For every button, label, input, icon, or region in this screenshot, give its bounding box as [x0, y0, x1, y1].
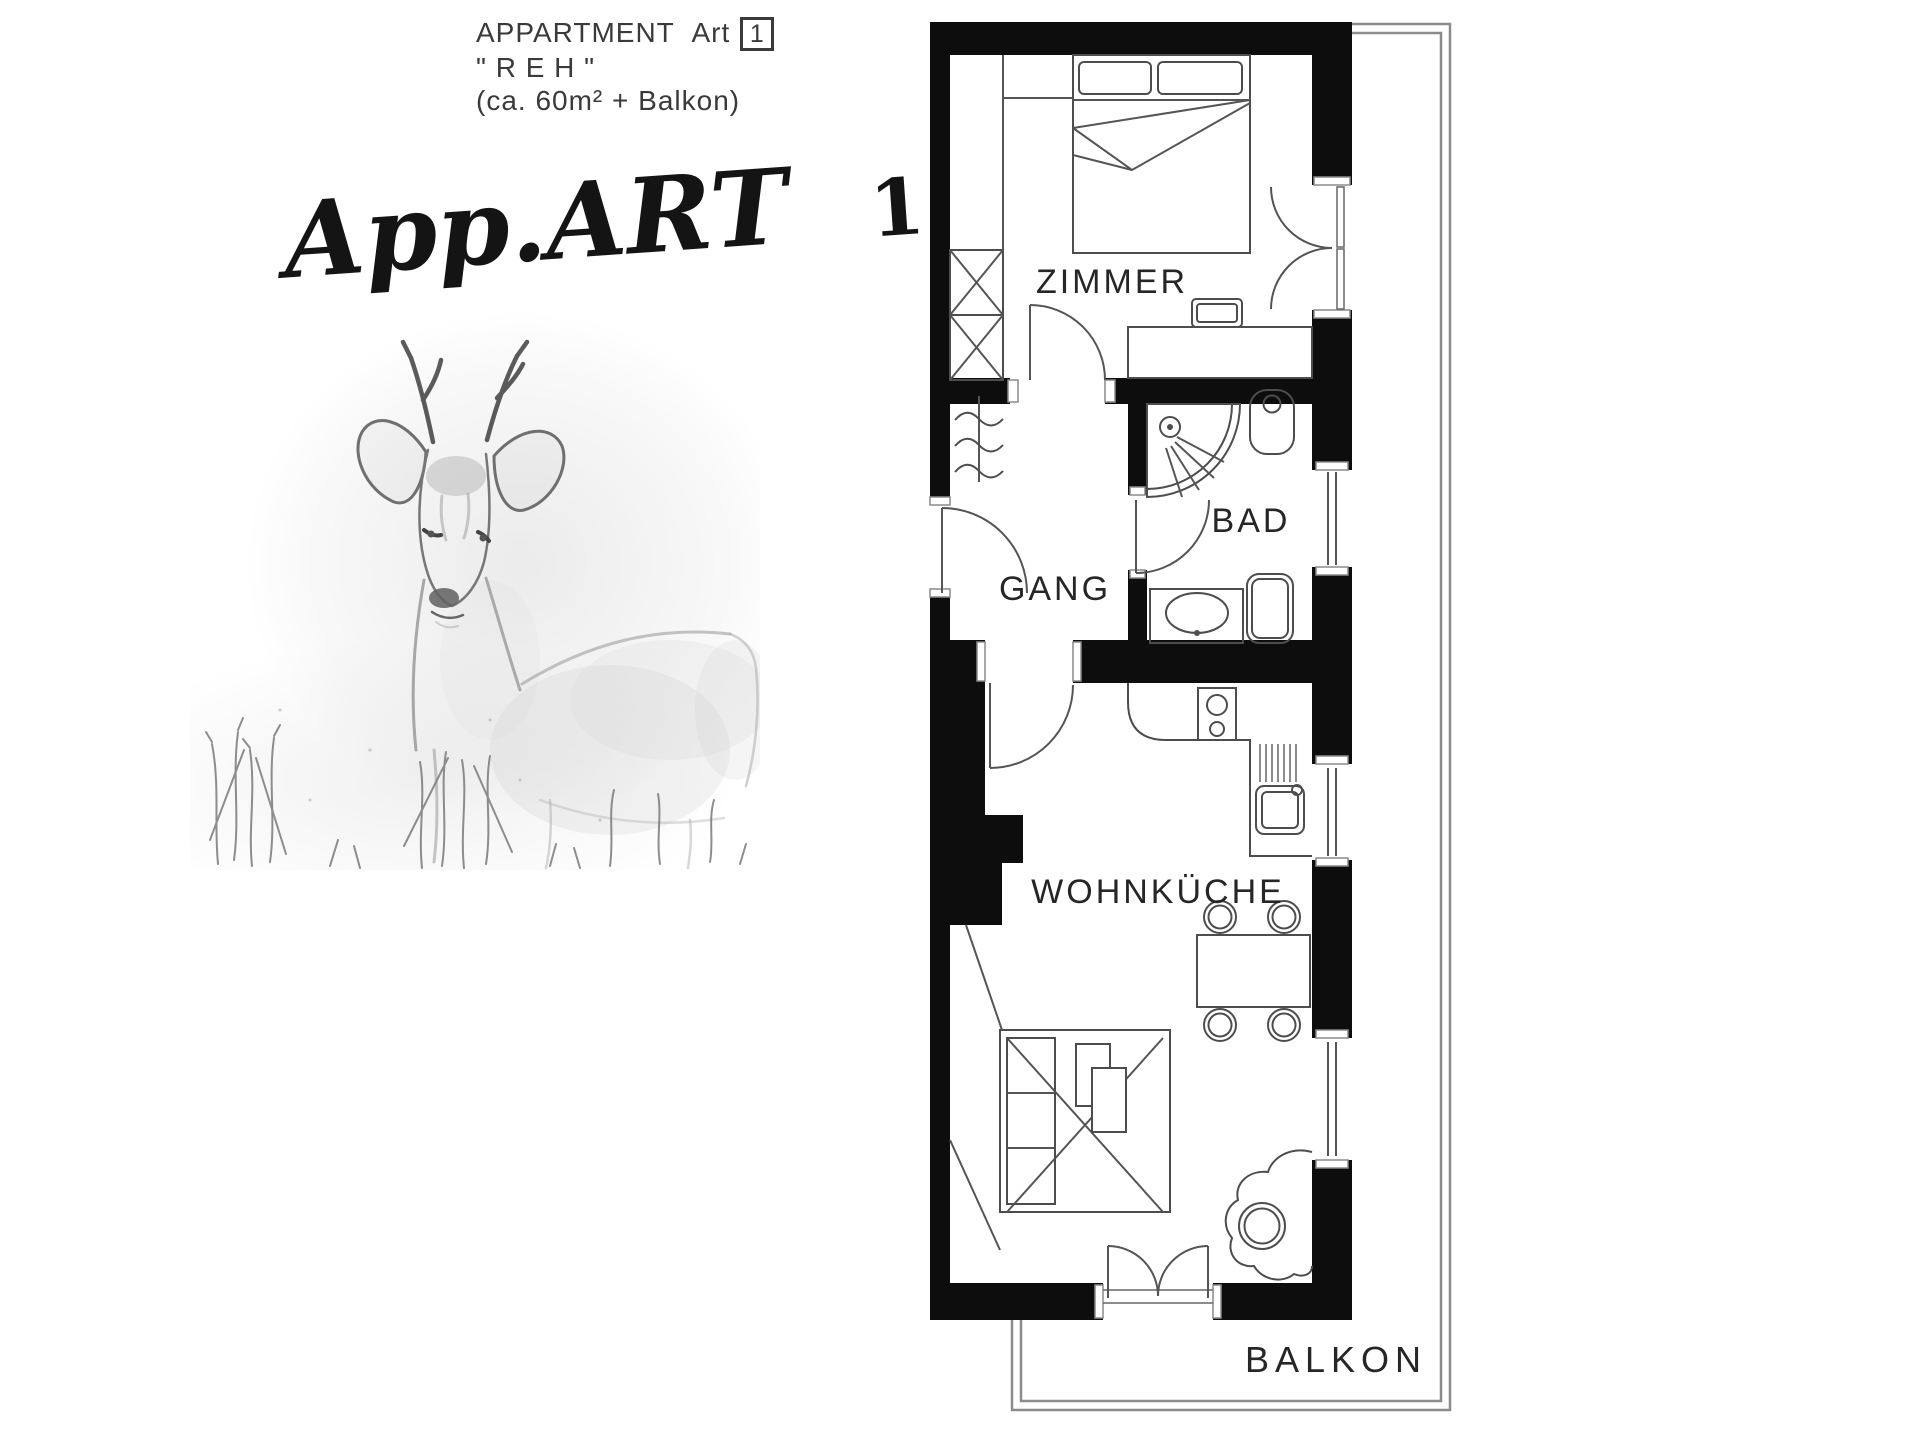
window-bad — [1316, 462, 1348, 575]
window-kitchen — [1316, 756, 1348, 866]
zimmer-balcony-door — [1271, 187, 1344, 309]
sofa-bed — [950, 925, 1170, 1250]
label-wohnkueche: WOHNKÜCHE — [1031, 873, 1285, 911]
zimmer-door — [1030, 305, 1105, 380]
floor-plan-svg: ZIMMER BAD GANG WOHNKÜCHE BALKON — [910, 0, 1490, 1440]
label-gang: GANG — [999, 570, 1111, 608]
washbasin — [1150, 589, 1243, 643]
radiator — [955, 396, 1003, 482]
bad-door — [1136, 500, 1209, 573]
corner-shower — [1147, 404, 1240, 497]
brand-name: App.ART — [279, 145, 791, 303]
balcony-railing — [1012, 24, 1450, 1410]
deer-body-shading — [426, 456, 760, 835]
dining-table — [1197, 901, 1310, 1041]
label-bad: BAD — [1212, 502, 1291, 540]
title-line-1: APPARTMENT Art1 — [476, 16, 774, 51]
title-line-3: (ca. 60m² + Balkon) — [476, 84, 774, 117]
plant — [1226, 1150, 1312, 1279]
unit-number-box: 1 — [740, 17, 774, 51]
double-bed — [1073, 55, 1250, 253]
balcony-double-door — [1103, 1246, 1213, 1303]
kitchen-door — [990, 683, 1073, 768]
window-living — [1316, 1030, 1348, 1168]
kitchen-sink — [1256, 744, 1304, 834]
label-balkon: BALKON — [1245, 1339, 1427, 1380]
wardrobe — [950, 55, 1073, 380]
door-jambs — [930, 177, 1350, 1318]
floor-plan: ZIMMER BAD GANG WOHNKÜCHE BALKON — [910, 0, 1490, 1440]
plan-title-block: APPARTMENT Art1 " R E H " (ca. 60m² + Ba… — [476, 16, 774, 117]
deer-sketch — [190, 280, 760, 870]
desk — [1128, 299, 1312, 378]
label-zimmer: ZIMMER — [1036, 263, 1188, 301]
deer-antlers — [403, 342, 527, 442]
deer-sketch-svg — [190, 280, 760, 870]
title-text: APPARTMENT Art — [476, 17, 730, 48]
bathtub — [1247, 574, 1293, 643]
walls — [930, 22, 1352, 1320]
title-line-2: " R E H " — [476, 51, 774, 84]
brand-script: App.ART1 — [280, 147, 906, 294]
